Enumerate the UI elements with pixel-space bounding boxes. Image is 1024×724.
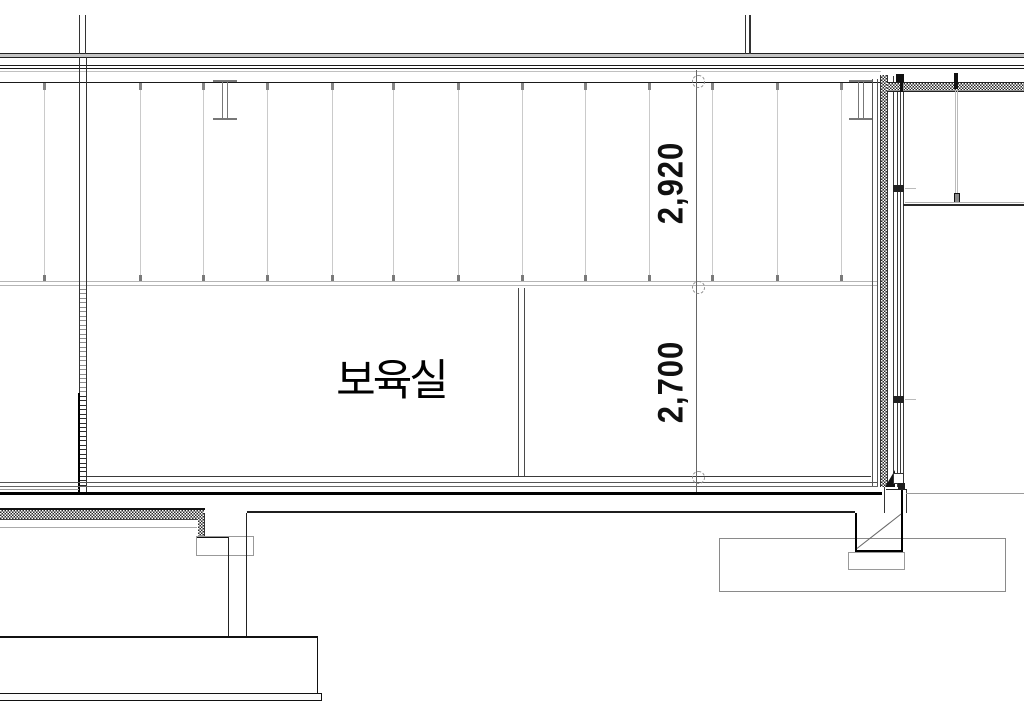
wall-hatch-rung: [80, 405, 86, 406]
exterior-ceiling-line: [903, 204, 1024, 206]
hanger-top-clip: [139, 83, 142, 90]
wall-hatch-rung: [80, 471, 86, 472]
wall-below-floor-line: [884, 487, 885, 513]
wall-hatch-rung: [80, 289, 86, 290]
wall-hatch-rung: [80, 374, 86, 375]
wall-hatch-rung: [80, 414, 86, 415]
roof-line: [0, 57, 1024, 58]
wall-clip-dash: [905, 188, 916, 189]
wall-hatch-rung: [80, 329, 86, 330]
pavement-bottom-line: [0, 519, 204, 520]
wall-rail: [86, 57, 87, 492]
hanger-top-clip: [521, 83, 524, 90]
dimension-label-lower: 2,700: [650, 341, 691, 424]
wall-hatch-rung: [80, 391, 86, 392]
wall-clip-dash: [905, 399, 916, 400]
wall-hatch-rung: [80, 418, 86, 419]
wall-hatch-rung: [80, 463, 86, 464]
wall-clip: [893, 185, 905, 192]
wall-hatch-rung: [80, 351, 86, 352]
exterior-ceiling-line-light: [905, 202, 1024, 203]
wall-face-line: [903, 76, 904, 490]
wall-hatch-rung: [80, 342, 86, 343]
wall-hatch-rung: [80, 387, 86, 388]
foundation-pier-bottom-edge: [855, 550, 903, 552]
wall-hatch-rung: [80, 316, 86, 317]
roof-line: [0, 65, 1024, 66]
ceiling-line-upper: [0, 281, 878, 282]
wall-face-line: [897, 76, 898, 487]
ground-line: [247, 511, 856, 513]
insulation-fixing-tick: [900, 80, 903, 92]
wall-hatch-rung: [80, 334, 86, 335]
ground-line-right: [906, 493, 1024, 494]
foundation-pier-line: [246, 513, 247, 637]
wall-hatch-rung: [80, 400, 86, 401]
hanger-top-clip: [266, 83, 269, 90]
wall-hatch-rung: [80, 365, 86, 366]
beam-web-line: [858, 82, 859, 118]
floor-slab-thick-line: [0, 492, 882, 495]
wall-hatch-rung: [80, 436, 86, 437]
foundation-pier-left-edge: [855, 513, 857, 552]
beam-web-line: [222, 82, 223, 118]
foundation-mat-top-line: [0, 636, 318, 638]
post-line: [85, 15, 87, 54]
wall-hatch-rung: [80, 325, 86, 326]
hanger-rod-top-tick: [954, 73, 958, 89]
wall-clip: [893, 396, 905, 403]
wall-hatch-rung: [80, 320, 86, 321]
hanger-top-clip: [202, 83, 205, 90]
ceiling-hanger-line: [712, 84, 713, 281]
hanger-top-clip: [331, 83, 334, 90]
hanger-rod-line: [957, 90, 958, 193]
post-line: [745, 15, 747, 54]
hanger-top-clip: [43, 83, 46, 90]
foundation-pier-line: [228, 537, 229, 637]
dimension-marker-bottom: [692, 471, 705, 484]
beam-top-flange: [849, 80, 873, 82]
ceiling-hanger-line: [267, 84, 268, 281]
foundation-pier-right-edge: [901, 490, 903, 552]
wall-hatch-rung: [80, 476, 86, 477]
hanger-top-clip: [711, 83, 714, 90]
ceiling-hanger-line: [140, 84, 141, 281]
dimension-label-upper: 2,920: [650, 142, 691, 225]
wall-hatch-rung: [80, 458, 86, 459]
wall-face-line: [877, 79, 878, 486]
wall-hatch-rung: [80, 311, 86, 312]
post-line: [749, 15, 751, 54]
footing-outline-right: [848, 552, 905, 570]
wall-insulation-hatch: [880, 75, 889, 487]
wall-hatch-rung: [80, 454, 86, 455]
ceiling-line-lower: [0, 285, 878, 286]
hanger-top-clip: [648, 83, 651, 90]
wall-hatch-rung: [80, 293, 86, 294]
hanger-top-clip: [392, 83, 395, 90]
wall-hatch-rung: [80, 307, 86, 308]
foundation-mat-right-line: [317, 637, 319, 694]
wall-face-line: [893, 76, 894, 487]
wall-hatch-rung: [80, 369, 86, 370]
drawing-canvas: 보육실 2,920 2,700: [0, 0, 1024, 724]
ceiling-hanger-line: [332, 84, 333, 281]
pavement-hatch: [0, 510, 204, 519]
wall-hatch-rung: [80, 382, 86, 383]
beam-bottom-flange: [849, 118, 873, 120]
floor-line-left: [0, 489, 79, 490]
ceiling-hanger-line: [44, 84, 45, 281]
wall-hatch-rung: [80, 449, 86, 450]
floor-line: [87, 476, 871, 477]
wall-hatch-rung: [80, 427, 86, 428]
beam-top-flange: [213, 80, 237, 82]
ceiling-hanger-line: [522, 84, 523, 281]
hanger-top-clip: [457, 83, 460, 90]
dimension-marker-middle: [692, 281, 705, 294]
wall-hatch-rung: [80, 431, 86, 432]
beam-web-line: [863, 82, 864, 118]
wall-hatch-rung: [80, 409, 86, 410]
beam-web-line: [227, 82, 228, 118]
wall-hatch-rung: [80, 467, 86, 468]
wall-hatch-rung: [80, 396, 86, 397]
post-line: [79, 15, 81, 54]
wall-hatch-rung: [80, 360, 86, 361]
floor-line: [0, 482, 878, 483]
roof-soffit-line: [0, 82, 883, 84]
hanger-top-clip: [776, 83, 779, 90]
floor-line: [0, 486, 878, 487]
wall-face-line: [872, 79, 873, 486]
wall-hatch-rung: [80, 338, 86, 339]
pavement-edge-line: [204, 513, 205, 537]
ceiling-hanger-line: [458, 84, 459, 281]
wall-hatch-rung: [80, 356, 86, 357]
roof-line-light: [0, 71, 881, 72]
pavement-sub-line: [0, 527, 197, 528]
foundation-mat-strip: [0, 693, 322, 701]
roof-line: [0, 68, 1024, 69]
wall-hatch-rung: [80, 378, 86, 379]
beam-bottom-flange: [213, 118, 237, 120]
wall-hatch-rung: [80, 423, 86, 424]
ceiling-hanger-line: [393, 84, 394, 281]
wall-thick-edge: [78, 393, 80, 492]
wall-hatch-rung: [80, 298, 86, 299]
hanger-top-clip: [840, 83, 843, 90]
dimension-marker-top: [692, 75, 705, 88]
ceiling-hanger-line: [777, 84, 778, 281]
wall-hatch-rung: [80, 302, 86, 303]
hanger-top-clip: [584, 83, 587, 90]
partition-line: [518, 288, 519, 476]
wall-hatch-rung: [80, 445, 86, 446]
wall-base-line: [886, 489, 907, 491]
partition-line: [524, 288, 525, 476]
room-label: 보육실: [336, 346, 446, 408]
ceiling-hanger-line: [585, 84, 586, 281]
hanger-rod-line: [955, 90, 956, 193]
wall-hatch-rung: [80, 440, 86, 441]
wall-hatch-rung: [80, 347, 86, 348]
wall-face-line: [900, 76, 901, 490]
ceiling-hanger-line: [841, 84, 842, 281]
ceiling-hanger-line: [203, 84, 204, 281]
